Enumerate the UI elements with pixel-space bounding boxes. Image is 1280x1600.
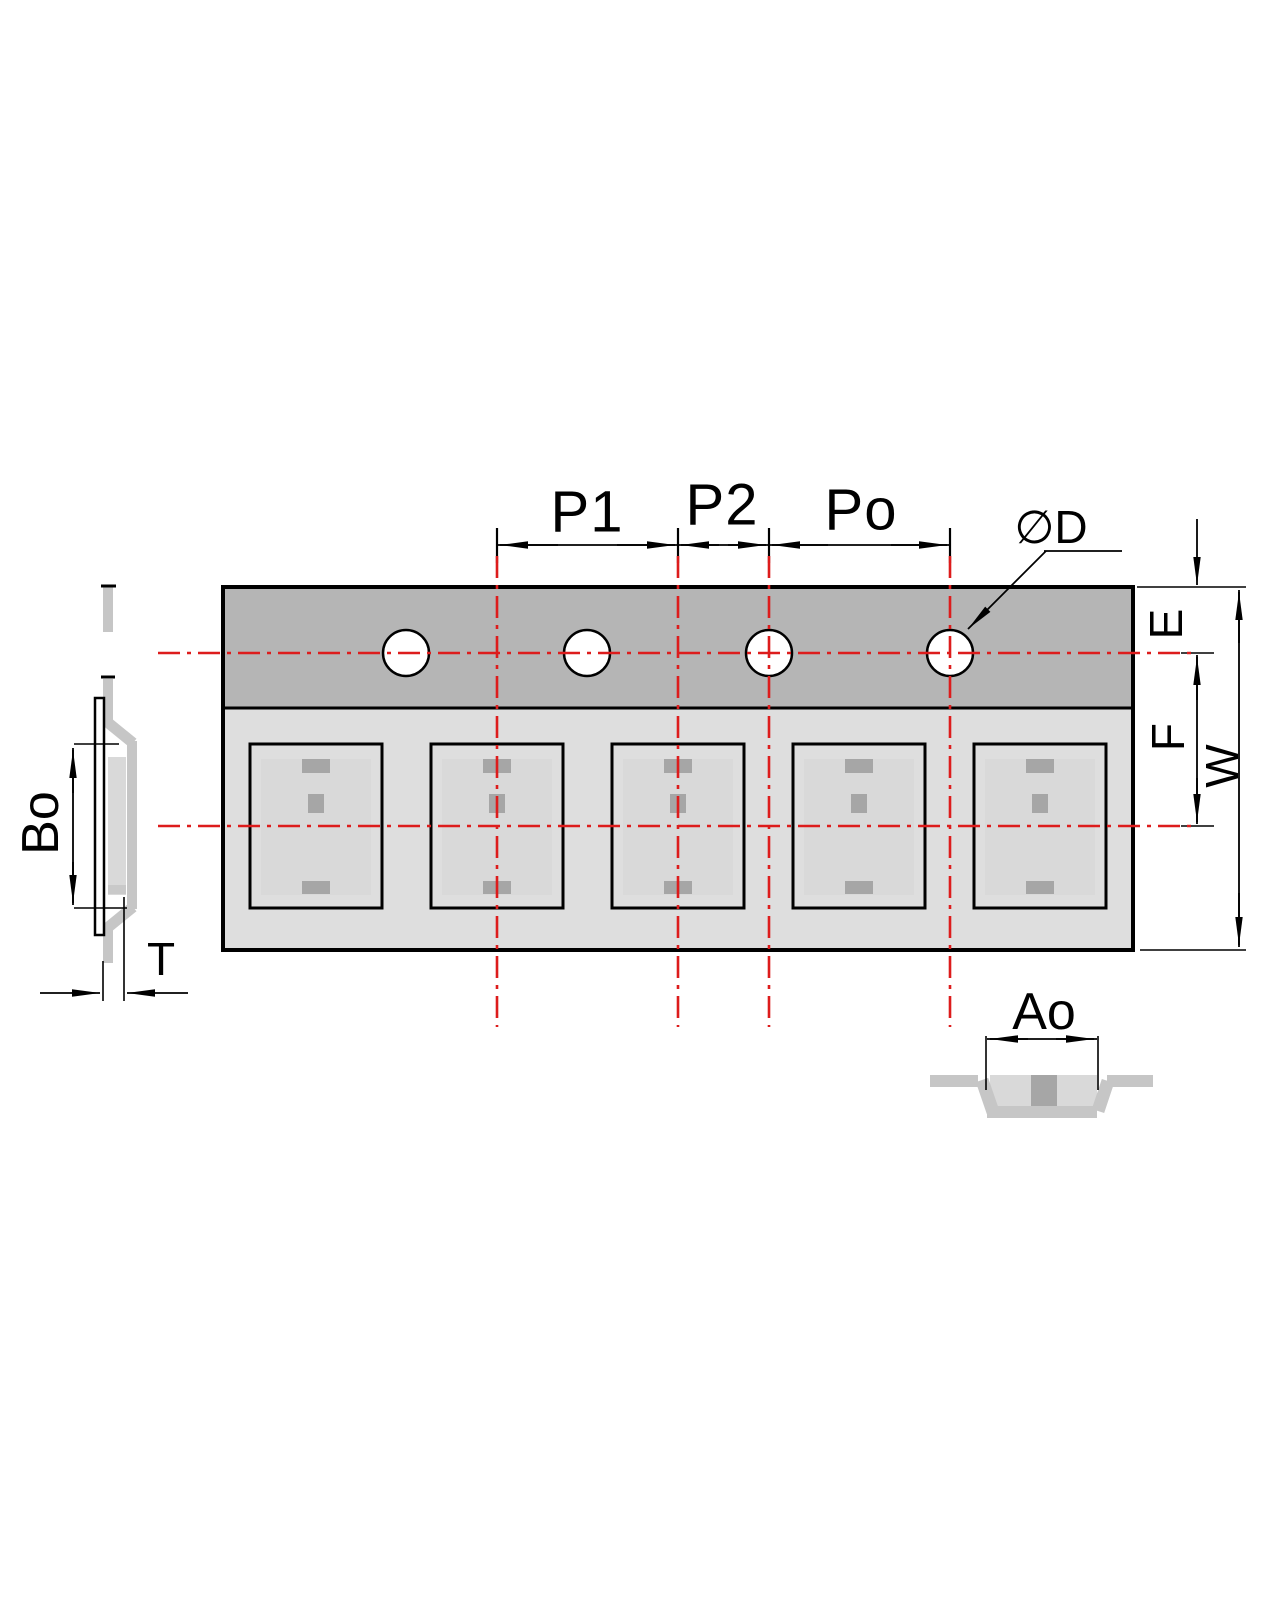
diameter-d-label: ∅D [1014,501,1087,553]
carrier-tape-drawing: Bo T P1 P2 Po ∅D [0,0,1280,1600]
side-pocket-slant-top [106,721,133,743]
w-label: W [1196,744,1248,788]
component-bottom-mark [1026,881,1054,894]
side-pocket-slant-bottom [106,907,133,929]
tape-side-view [95,585,137,963]
component-top-mark [845,759,873,773]
side-tape-strip-top [103,585,113,632]
e-label: E [1140,609,1192,640]
side-cover-tape [95,698,104,935]
po-label: Po [825,478,898,543]
component-top-mark [1026,759,1054,773]
p1-label: P1 [551,480,624,545]
section-pocket-bottom [987,1106,1097,1118]
dimension-p1-p2-po: P1 P2 Po [497,473,950,564]
component-bottom-mark [302,881,330,894]
component-center-mark [851,794,867,813]
section-flange-right [1107,1075,1153,1087]
pocket-section-view: Ao [930,983,1153,1118]
f-label: F [1142,723,1194,751]
section-flange-left [930,1075,978,1087]
dimension-t: T [40,897,188,1001]
p2-label: P2 [686,473,759,538]
component-top-mark [302,759,330,773]
carrier-tape-drawing-page: Bo T P1 P2 Po ∅D [0,0,1280,1600]
t-label: T [147,933,175,985]
dimension-e-f-w: E F W [1137,519,1248,950]
component-center-mark [1032,794,1048,813]
component-center-mark [308,794,324,813]
side-component [108,757,126,895]
side-component-seat [108,885,126,894]
bo-label: Bo [12,791,70,855]
section-wall-right [1098,1081,1108,1111]
section-component-mark [1031,1075,1057,1106]
ao-label: Ao [1012,983,1076,1041]
component-bottom-mark [845,881,873,894]
side-pocket-face [127,741,137,909]
component [261,759,371,895]
